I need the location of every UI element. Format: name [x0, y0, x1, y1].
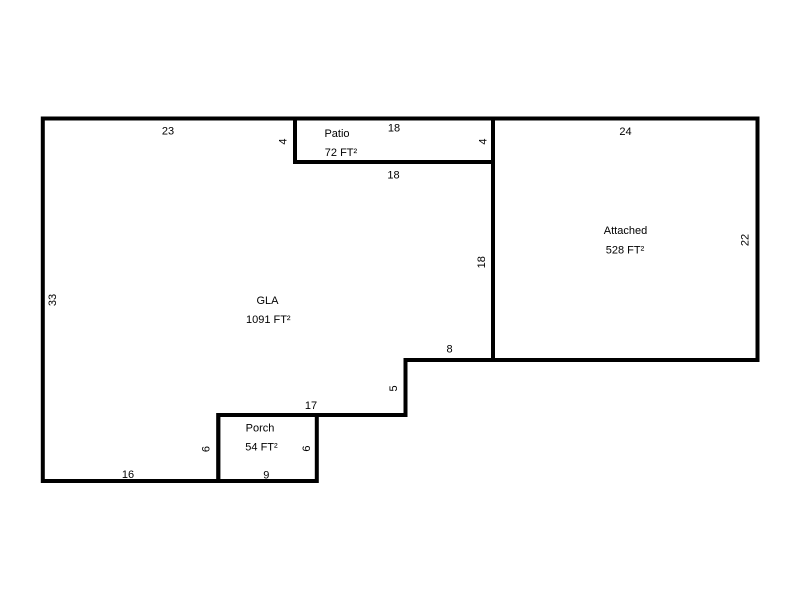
svg-text:18: 18 — [476, 256, 488, 268]
svg-text:GLA: GLA — [256, 295, 279, 307]
svg-text:17: 17 — [305, 400, 317, 412]
svg-text:33: 33 — [47, 294, 59, 306]
svg-text:6: 6 — [200, 446, 212, 452]
svg-text:23: 23 — [162, 126, 174, 138]
svg-text:Patio: Patio — [324, 128, 349, 140]
svg-text:6: 6 — [301, 446, 313, 452]
svg-text:528 FT²: 528 FT² — [606, 245, 645, 257]
svg-text:18: 18 — [388, 123, 400, 135]
svg-text:1091 FT²: 1091 FT² — [246, 314, 291, 326]
svg-text:8: 8 — [446, 344, 452, 356]
svg-text:22: 22 — [740, 234, 752, 246]
svg-text:9: 9 — [263, 470, 269, 482]
svg-text:Attached: Attached — [604, 225, 647, 237]
svg-text:18: 18 — [387, 170, 399, 182]
svg-text:54 FT²: 54 FT² — [245, 442, 278, 454]
svg-text:Porch: Porch — [246, 423, 275, 435]
svg-text:16: 16 — [122, 469, 134, 481]
svg-text:24: 24 — [619, 126, 631, 138]
svg-text:4: 4 — [278, 138, 290, 144]
svg-text:4: 4 — [478, 138, 490, 144]
svg-text:72 FT²: 72 FT² — [325, 147, 358, 159]
svg-text:5: 5 — [388, 385, 400, 391]
